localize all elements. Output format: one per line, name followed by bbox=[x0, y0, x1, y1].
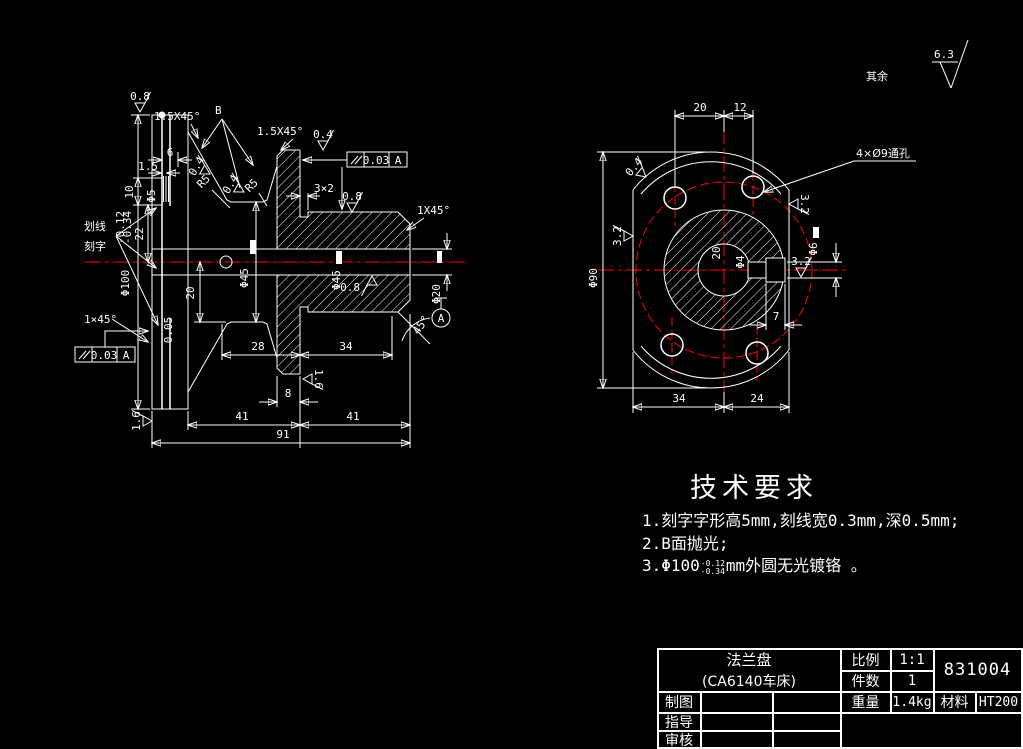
svg-text:Φ6: Φ6 bbox=[807, 242, 820, 255]
weight-label: 重量 bbox=[841, 692, 890, 712]
weight-value: 1.4kg bbox=[891, 692, 933, 712]
svg-text:1.6: 1.6 bbox=[312, 369, 325, 389]
tolerance-stack: -0.12-0.34 bbox=[701, 560, 725, 576]
part-name: 法兰盘 bbox=[658, 649, 840, 670]
left-view: Φ100 -0.12 -0.34 6 1.5 10 Φ5 bbox=[75, 90, 466, 448]
svg-text:6: 6 bbox=[167, 146, 174, 159]
svg-text:8: 8 bbox=[285, 387, 292, 400]
label-chamfer-top-left: 1.5X45° bbox=[154, 110, 200, 138]
svg-text:1X45°: 1X45° bbox=[417, 204, 450, 217]
qty-label: 件数 bbox=[841, 670, 890, 691]
svg-text:A: A bbox=[395, 154, 402, 167]
svg-text:3.2: 3.2 bbox=[611, 226, 624, 246]
dim-24-label: 24 bbox=[750, 392, 764, 405]
svg-text:0.8: 0.8 bbox=[340, 281, 360, 294]
dim-20: 20 bbox=[184, 262, 226, 322]
roughness-3-2-keyway: 3.2 bbox=[791, 255, 811, 277]
svg-text:0.8: 0.8 bbox=[342, 190, 362, 203]
svg-text:20: 20 bbox=[710, 246, 723, 259]
roughness-0-4-top: 0.4 bbox=[623, 155, 653, 185]
roughness-3-2-left: 3.2 bbox=[611, 226, 633, 246]
svg-text:3×2: 3×2 bbox=[314, 182, 334, 195]
flatness-value: 0.05 bbox=[162, 317, 175, 344]
right-view: 20 12 4×Ø9通孔 Φ90 34 24 bbox=[587, 101, 916, 413]
svg-text:4×Ø9通孔: 4×Ø9通孔 bbox=[856, 147, 910, 160]
scale-label: 比例 bbox=[841, 649, 890, 670]
svg-text:A: A bbox=[438, 312, 445, 325]
drawing-number: 831004 bbox=[934, 648, 1021, 691]
label-huaxian: 划线 bbox=[84, 219, 106, 233]
svg-text:91: 91 bbox=[276, 428, 289, 441]
label-kezi: 刻字 bbox=[84, 239, 106, 253]
dim-34-label: 34 bbox=[672, 392, 686, 405]
cad-drawing-sheet: 其余 6.3 bbox=[0, 0, 1023, 749]
label-chamfer-collar: 1.5X45° bbox=[257, 125, 303, 150]
svg-text:Φ45: Φ45 bbox=[238, 268, 251, 288]
dim-bore-20: 20 bbox=[710, 246, 723, 259]
tech-item-2: 2.B面抛光; bbox=[642, 530, 729, 554]
row-drawn-label: 制图 bbox=[658, 692, 700, 712]
holes-label: 4×Ø9通孔 bbox=[764, 147, 916, 192]
tolerance-block bbox=[813, 227, 819, 238]
qty-value: 1 bbox=[891, 670, 933, 691]
svg-text:45°: 45° bbox=[410, 313, 432, 337]
dim-1-5: 1.5 bbox=[138, 160, 180, 173]
svg-text:0.8: 0.8 bbox=[130, 90, 150, 103]
svg-text:1.5: 1.5 bbox=[138, 160, 158, 173]
dim-20-label: 20 bbox=[693, 101, 706, 114]
label-chamfer-right: 1X45° bbox=[407, 204, 450, 230]
svg-text:B: B bbox=[215, 104, 222, 117]
roughness-3-2-right: 3.2 bbox=[789, 194, 811, 214]
svg-text:20: 20 bbox=[184, 286, 197, 299]
svg-text:0.4: 0.4 bbox=[313, 128, 333, 141]
svg-text:0.05: 0.05 bbox=[162, 317, 175, 344]
svg-text:0.03: 0.03 bbox=[363, 154, 390, 167]
svg-text:10: 10 bbox=[123, 185, 136, 198]
parallelism-icon bbox=[79, 351, 90, 359]
svg-text:3.2: 3.2 bbox=[791, 255, 811, 268]
svg-text:0.4: 0.4 bbox=[623, 155, 646, 179]
dim-34: 34 bbox=[300, 340, 392, 355]
svg-text:Φ5: Φ5 bbox=[145, 189, 158, 202]
label-angle-45: 45° bbox=[398, 312, 432, 344]
tech-item-1: 1.刻字字形高5mm,刻线宽0.3mm,深0.5mm; bbox=[642, 507, 959, 531]
corner-label: 其余 bbox=[866, 69, 888, 83]
svg-text:0.03: 0.03 bbox=[91, 349, 118, 362]
scale-value: 1:1 bbox=[891, 649, 933, 670]
svg-text:41: 41 bbox=[346, 410, 359, 423]
svg-text:1.5X45°: 1.5X45° bbox=[257, 125, 303, 138]
roughness-0-8-cylinder: 0.8 bbox=[342, 190, 362, 212]
roughness-0-4-collar: 0.4 bbox=[313, 128, 333, 150]
svg-text:0.4: 0.4 bbox=[220, 172, 241, 196]
svg-text:28: 28 bbox=[251, 340, 264, 353]
svg-text:R5: R5 bbox=[242, 176, 261, 195]
dim-34-24: 34 24 bbox=[633, 352, 789, 413]
tech-requirements-title: 技术要求 bbox=[690, 466, 818, 505]
svg-text:7: 7 bbox=[773, 310, 780, 323]
gdt-parallelism-bottom: 0.03 A bbox=[75, 331, 148, 362]
tolerance-block bbox=[250, 240, 256, 254]
dim-91: 91 bbox=[152, 428, 410, 443]
svg-text:A: A bbox=[123, 349, 130, 362]
svg-text:1.6: 1.6 bbox=[130, 411, 143, 431]
roughness-1-6-left-bottom: 1.6 bbox=[130, 411, 152, 431]
dim-8: 8 bbox=[259, 387, 318, 402]
svg-text:1.5X45°: 1.5X45° bbox=[154, 110, 200, 123]
tech-item-3: 3.Φ100-0.12-0.34mm外圆无光镀铬 。 bbox=[642, 552, 867, 576]
left-view-detail-lines bbox=[159, 112, 278, 410]
tolerance-block bbox=[437, 251, 442, 263]
svg-text:3.2: 3.2 bbox=[798, 194, 811, 214]
corner-roughness-value: 6.3 bbox=[934, 48, 954, 61]
svg-text:Φ100: Φ100 bbox=[119, 270, 132, 297]
svg-text:41: 41 bbox=[235, 410, 248, 423]
keyway bbox=[748, 258, 785, 282]
roughness-0-8-top-left: 0.8 bbox=[130, 90, 150, 112]
tolerance-block bbox=[336, 251, 342, 264]
dim-phi20: Φ20 bbox=[412, 233, 452, 304]
svg-text:Φ4: Φ4 bbox=[734, 255, 747, 269]
material-label: 材料 bbox=[934, 692, 975, 712]
row-guide-label: 指导 bbox=[658, 713, 700, 730]
svg-text:22: 22 bbox=[133, 227, 146, 240]
drawing-svg: 其余 6.3 bbox=[0, 0, 1023, 749]
part-subtitle: (CA6140车床) bbox=[658, 670, 840, 691]
tech-requirements: 技术要求 bbox=[690, 466, 818, 505]
dim-20-12: 20 12 bbox=[675, 101, 753, 186]
parallelism-icon bbox=[351, 156, 362, 164]
dim-41-right: 41 bbox=[300, 410, 410, 425]
dim-phi5: Φ5 bbox=[145, 189, 158, 202]
dim-41-left: 41 bbox=[188, 410, 300, 425]
row-review-label: 审核 bbox=[658, 731, 700, 748]
dim-22: 22 bbox=[133, 205, 148, 262]
general-roughness-note: 其余 6.3 bbox=[866, 40, 968, 88]
svg-text:34: 34 bbox=[339, 340, 353, 353]
dim-phi4: Φ4 bbox=[734, 255, 747, 269]
svg-text:Φ90: Φ90 bbox=[587, 268, 600, 288]
roughness-1-6-collar-bottom: 1.6 bbox=[303, 369, 325, 389]
material-value: HT200 bbox=[976, 692, 1021, 712]
dim-12-label: 12 bbox=[733, 101, 746, 114]
